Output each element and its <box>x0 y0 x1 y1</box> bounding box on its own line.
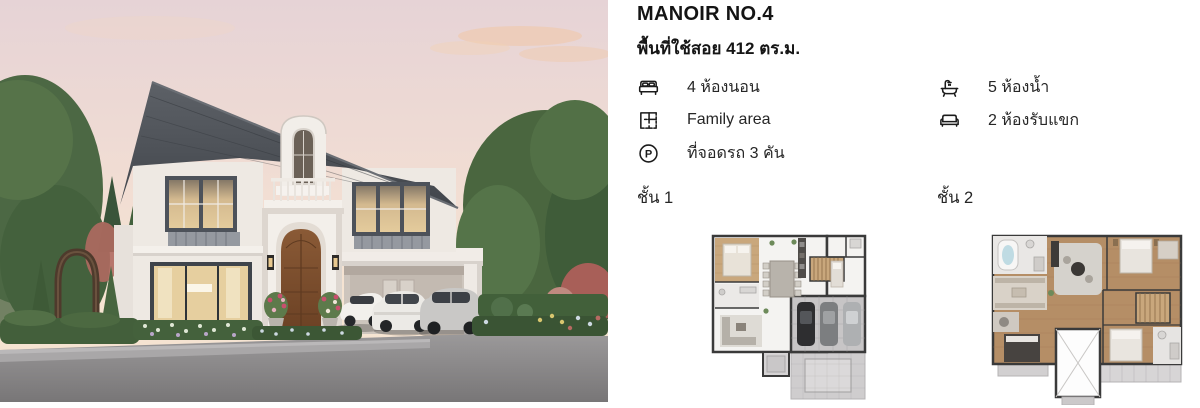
floor-plan-2[interactable] <box>990 233 1184 405</box>
manoir-listing-section: MANOIR NO.4 พื้นที่ใช้สอย 412 ตร.ม. 4 ห้… <box>0 0 1200 408</box>
feature-label: Family area <box>687 111 771 129</box>
floor-plan-1-image <box>710 233 868 403</box>
floor-plan-2-image <box>990 233 1184 405</box>
feature-parking: P ที่จอดรถ 3 คัน <box>636 140 926 166</box>
feature-bathrooms: 5 ห้องน้ำ <box>937 74 1197 100</box>
floor-2-label: ชั้น 2 <box>937 185 973 211</box>
floor-plan-1[interactable] <box>710 233 868 403</box>
parking-letter: P <box>644 148 651 160</box>
bed-icon <box>636 75 660 99</box>
feature-label: 2 ห้องรับแขก <box>988 108 1079 133</box>
house-exterior-render <box>0 0 608 402</box>
usable-area-label: พื้นที่ใช้สอย 412 ตร.ม. <box>637 35 800 62</box>
floor-1-label: ชั้น 1 <box>637 185 673 211</box>
feature-label: ที่จอดรถ 3 คัน <box>687 141 785 166</box>
sofa-icon <box>937 108 961 132</box>
parking-icon: P <box>636 141 660 165</box>
floorplan-icon <box>636 108 660 132</box>
feature-family-area: Family area <box>636 107 926 133</box>
feature-bedrooms: 4 ห้องนอน <box>636 74 926 100</box>
feature-living-rooms: 2 ห้องรับแขก <box>937 107 1197 133</box>
feature-label: 5 ห้องน้ำ <box>988 75 1049 100</box>
page-title: MANOIR NO.4 <box>637 3 774 26</box>
feature-label: 4 ห้องนอน <box>687 75 760 100</box>
bathtub-icon <box>937 75 961 99</box>
house-photo[interactable] <box>0 0 608 402</box>
